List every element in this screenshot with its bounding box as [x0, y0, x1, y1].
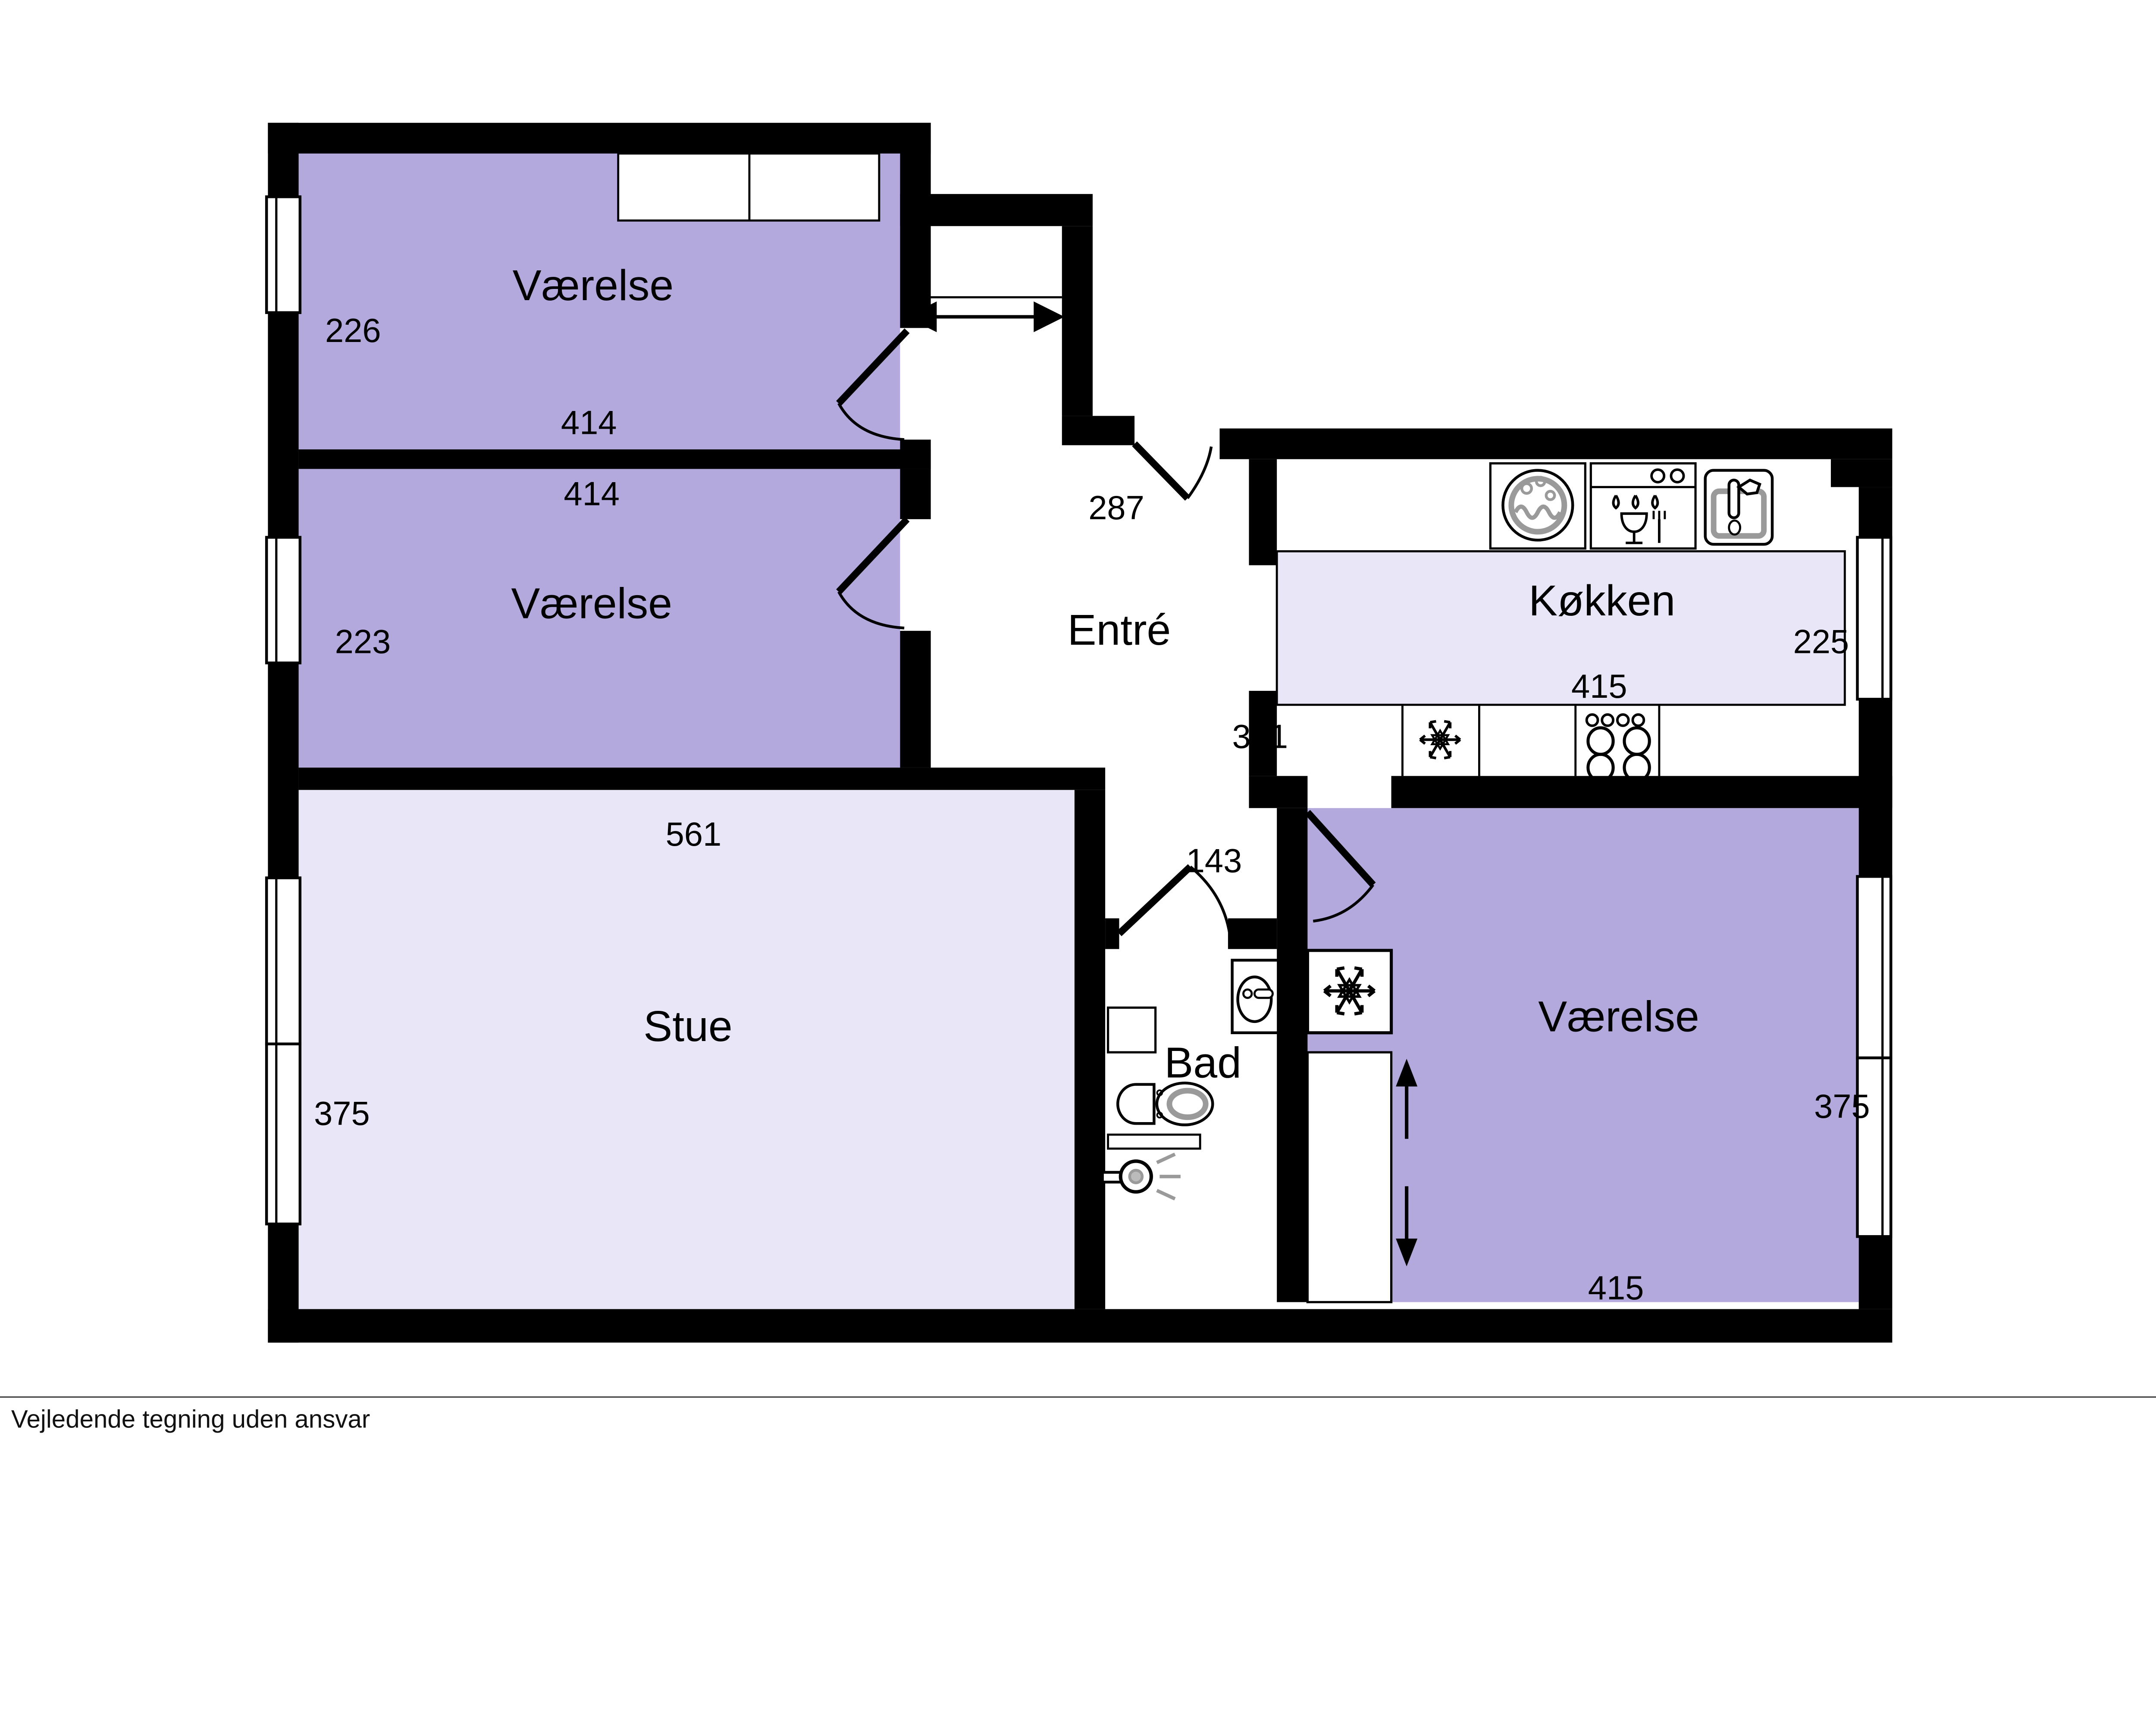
kokken-depth: 225 [1793, 624, 1849, 661]
stue-width: 561 [666, 816, 722, 853]
bad-label: Bad [1164, 1038, 1241, 1087]
wall-porch-right [1062, 226, 1093, 416]
window [266, 878, 300, 1044]
stue-label: Stue [643, 1002, 732, 1051]
wall-outer-top [268, 123, 931, 154]
wall-kitchen-left-upper [1249, 459, 1277, 565]
window [266, 1044, 300, 1224]
wall-divider-room1-room2 [299, 449, 931, 469]
wall-porch-top [900, 194, 1093, 226]
wall-bad-right [1277, 808, 1307, 1302]
room-nw-width: 414 [561, 404, 617, 441]
room-w-label: Værelse [511, 580, 672, 628]
room-nw-depth: 226 [325, 312, 381, 349]
kitchen-sink-icon [1705, 470, 1772, 545]
room-fill-kokken [1277, 551, 1845, 705]
wall-stue-right [1075, 790, 1105, 1309]
shower-icon [1103, 1154, 1181, 1199]
wall-kitchen-south-left [1249, 776, 1307, 808]
bath-shelf [1108, 1135, 1200, 1148]
wall-kitchen-north [1219, 429, 1892, 459]
bad-door-width: 143 [1186, 843, 1242, 880]
kitchen-counter-top [1490, 463, 1772, 548]
freezer-icon [1420, 721, 1460, 758]
wall-outer-bottom [268, 1309, 1892, 1343]
window [266, 197, 300, 313]
window [1857, 1058, 1891, 1236]
wall-corner-jog-a [1831, 459, 1892, 487]
kokken-width: 415 [1571, 668, 1627, 705]
room-se-width: 415 [1588, 1270, 1644, 1307]
kitchen-counter-bottom [1402, 705, 1659, 781]
wall-corner-jog-b [1859, 487, 1893, 537]
stove-icon [1587, 715, 1650, 781]
wall-bad-top-left [1105, 918, 1119, 949]
dishwasher-icon [1591, 463, 1695, 548]
wall-room2-right-upper [900, 469, 931, 519]
closet [618, 154, 879, 220]
floor-plan-page: Værelse 226 414 414 Værelse 223 287 Entr… [0, 0, 2156, 1437]
window [1857, 537, 1891, 699]
entre-entry-width: 287 [1088, 489, 1144, 527]
window [266, 537, 300, 663]
utility-shaft [1307, 1052, 1391, 1302]
wall-porch-step [1062, 416, 1134, 445]
room-nw-label: Værelse [513, 261, 674, 310]
toilet-icon [1118, 1083, 1213, 1125]
room-se-depth: 375 [1814, 1088, 1870, 1125]
kokken-label: Køkken [1529, 577, 1675, 625]
entre-passage-width: 341 [1232, 718, 1288, 756]
bath-sink-icon [1232, 960, 1279, 1033]
stue-depth: 375 [314, 1095, 370, 1132]
room-w-width: 414 [564, 476, 620, 513]
window [1857, 876, 1891, 1058]
footer-disclaimer: Vejledende tegning uden ansvar [11, 1405, 370, 1433]
washing-machine-icon [1490, 463, 1585, 548]
wall-divider-room2-stue [299, 768, 1106, 790]
entre-label: Entré [1068, 606, 1171, 654]
wall-room2-right-lower [900, 631, 931, 768]
bath-cabinet [1108, 1008, 1156, 1053]
room-w-depth: 223 [335, 624, 391, 661]
door-entrance [1134, 444, 1211, 498]
wall-bad-top-right [1228, 918, 1277, 949]
floor-plan-canvas: Værelse 226 414 414 Værelse 223 287 Entr… [0, 0, 2156, 1437]
room-se-label: Værelse [1538, 993, 1699, 1041]
entrance-double-arrow-icon [910, 304, 1061, 329]
